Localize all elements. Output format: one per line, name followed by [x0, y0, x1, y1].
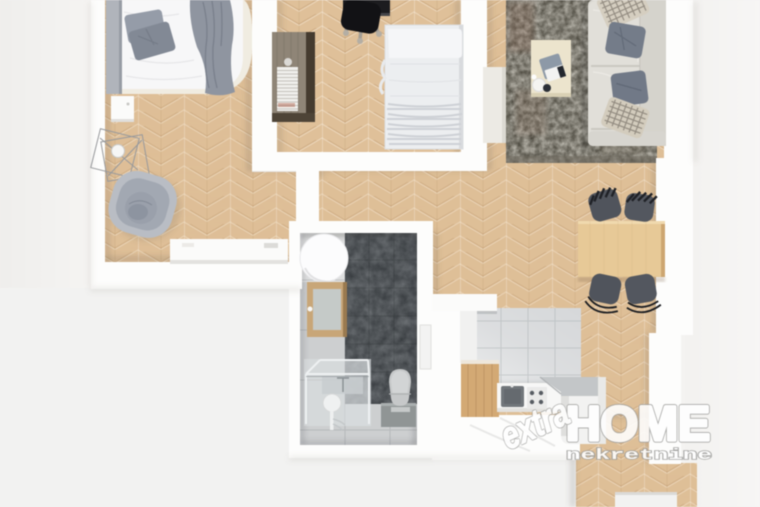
svg-text:nekretnine: nekretnine [566, 447, 712, 464]
svg-text:HOME: HOME [566, 398, 710, 451]
